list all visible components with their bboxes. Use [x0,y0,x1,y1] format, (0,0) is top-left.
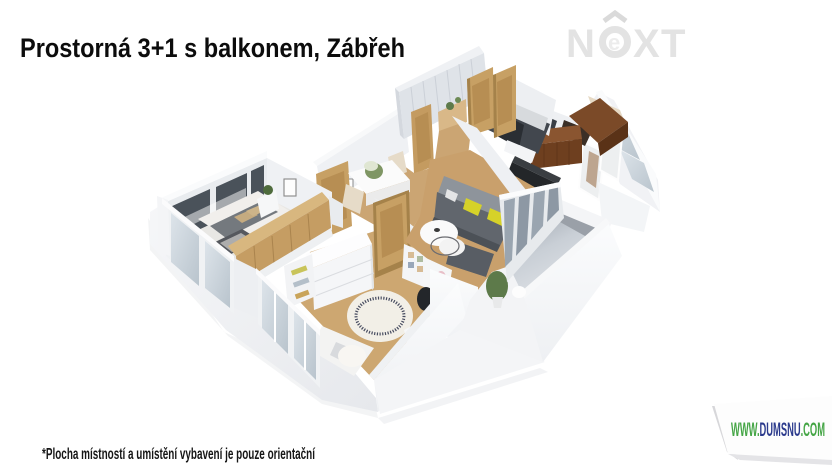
svg-text:WWW.DUMSNU.COM: WWW.DUMSNU.COM [731,420,825,441]
svg-text:*Plocha místností a umístění v: *Plocha místností a umístění vybavení je… [42,446,315,463]
svg-text:T: T [661,22,685,66]
svg-text:X: X [633,22,660,66]
svg-text:N: N [566,22,595,66]
svg-text:Prostorná 3+1 s balkonem, Zábř: Prostorná 3+1 s balkonem, Zábřeh [20,33,405,63]
svg-text:e: e [608,30,620,55]
